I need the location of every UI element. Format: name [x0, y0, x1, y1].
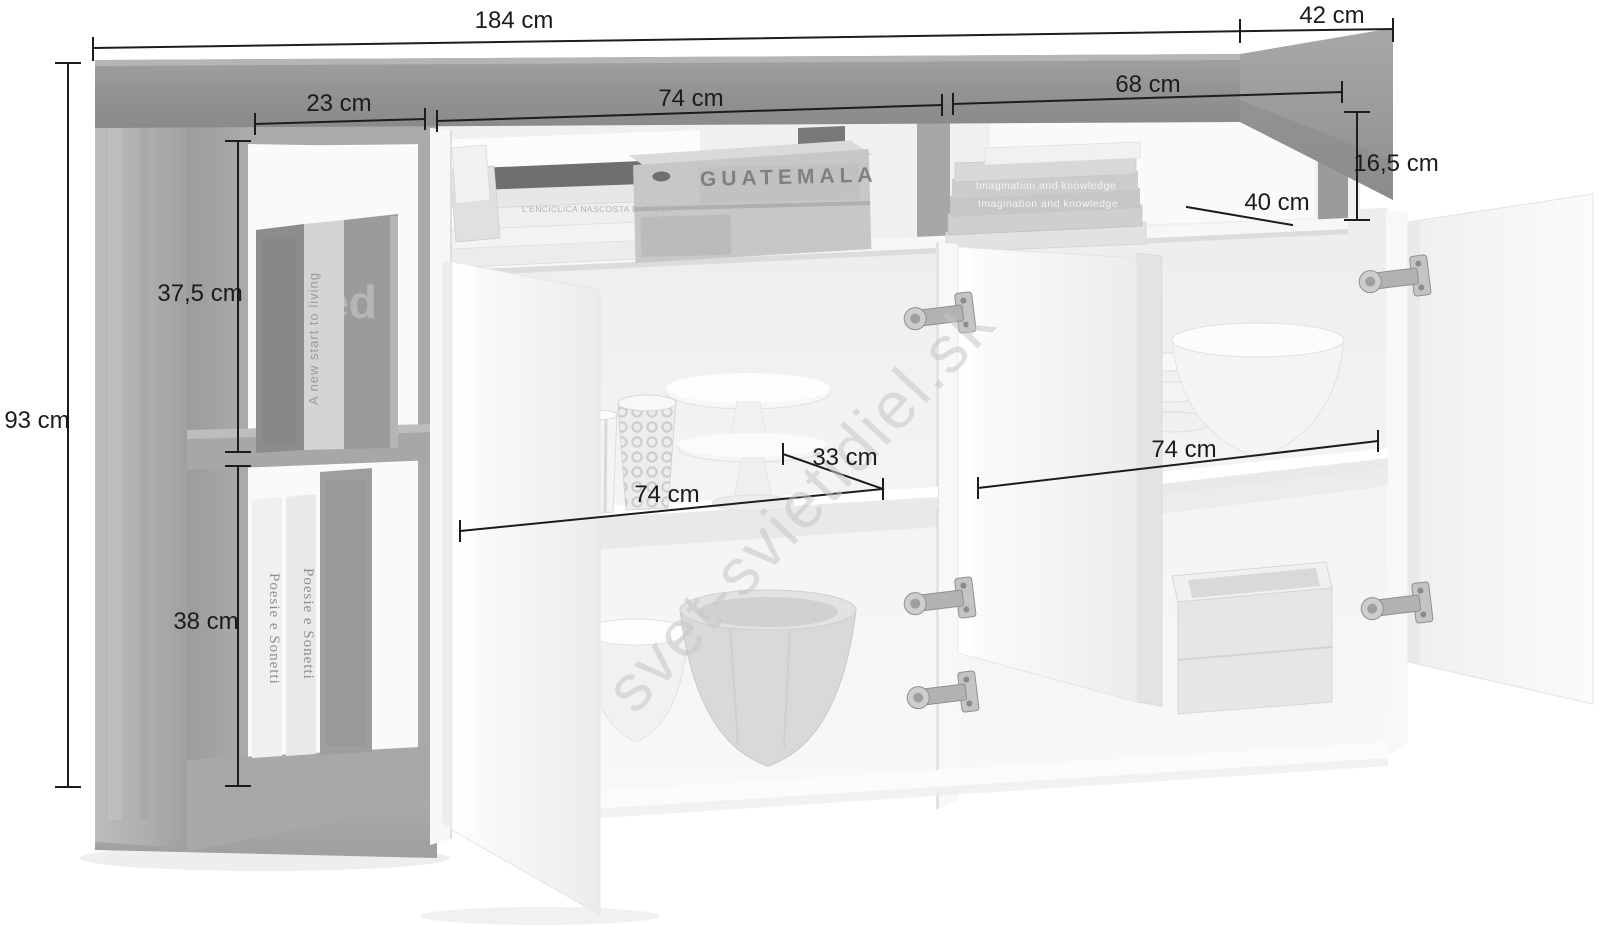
dim-right-shelf-width: 74 cm [1151, 436, 1216, 464]
dim-top-right-opening-width: 68 cm [1115, 71, 1180, 99]
book-spine-poesie-2: Poesie e Sonetti [287, 500, 316, 748]
dim-left-upper-compartment-height: 37,5 cm [157, 280, 242, 308]
dim-top-opening-height: 16,5 cm [1353, 150, 1438, 178]
dim-middle-shelf-width: 74 cm [634, 481, 699, 509]
wooden-box-right [1172, 562, 1332, 714]
dim-left-lower-compartment-height: 38 cm [173, 608, 238, 636]
sideboard-dimension-diagram: A new start to living Poesie e Sonetti P… [0, 0, 1600, 927]
book-spine-poesie-1: Poesie e Sonetti [253, 505, 282, 753]
door-right-open [1408, 194, 1593, 704]
dim-middle-shelf-right-width: 33 cm [812, 444, 877, 472]
book-title-imagination-2: Imagination and knowledge [962, 198, 1134, 210]
book-title-imagination-1: Imagination and knowledge [960, 180, 1132, 192]
sideboard-illustration [0, 0, 1600, 927]
door-middle-pair-open [958, 247, 1162, 706]
crate-label: GUATEMALA [700, 164, 863, 192]
dim-left-compartment-width: 23 cm [306, 90, 371, 118]
dim-total-width: 184 cm [475, 7, 554, 35]
dim-top-left-opening-width: 74 cm [658, 85, 723, 113]
book-spine-living: A new start to living [306, 232, 342, 446]
dim-total-depth: 42 cm [1299, 2, 1364, 30]
book-spine-enciclica: L'ENCICLICA NASCOSTA DI PIO XI [522, 204, 634, 214]
dim-total-height: 93 cm [4, 407, 69, 435]
dim-top-opening-depth: 40 cm [1244, 189, 1309, 217]
watermark-fragment: ed [323, 275, 377, 329]
